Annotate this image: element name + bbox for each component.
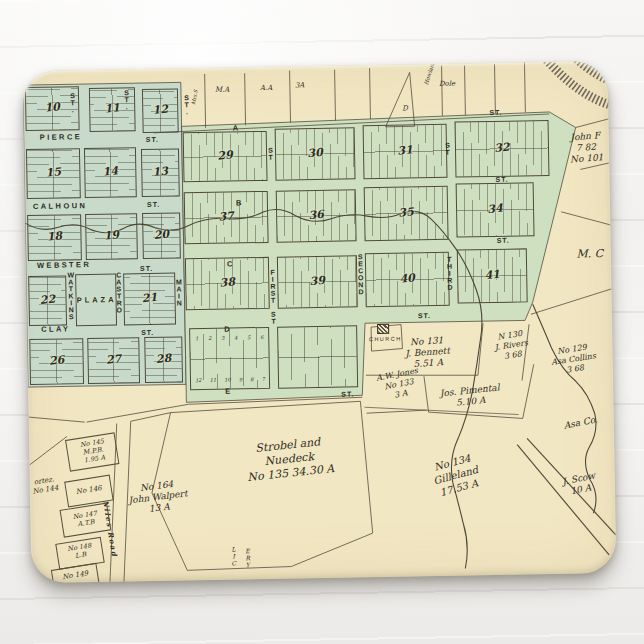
- map-block-lots: [277, 325, 358, 388]
- street-label-st: ST.: [140, 265, 153, 272]
- parcel-label-line: LIC: [229, 545, 237, 566]
- lot-number: 8: [250, 376, 253, 382]
- block-number: 28: [145, 350, 182, 367]
- street-label-first-st: FIRST ST: [268, 269, 278, 325]
- block-number: 38: [186, 272, 269, 294]
- mousepad: 10111215141318192022PLAZA212627282930313…: [23, 61, 617, 583]
- racetrack-arc-0: [541, 61, 616, 110]
- map-block-28: 28: [144, 336, 183, 383]
- block-number: 39: [278, 270, 357, 291]
- block-number: 12: [143, 101, 178, 117]
- lot-number: 1: [195, 335, 198, 341]
- map-block-36: 36: [276, 189, 357, 242]
- block-number: 37: [185, 206, 268, 228]
- boundary-line-30: [29, 436, 67, 465]
- map-block-15: 15: [26, 148, 81, 199]
- map-block-20: 20: [142, 212, 181, 259]
- map-block-19: 19: [85, 213, 138, 260]
- block-number: 14: [85, 163, 136, 181]
- map-block-37: 37: [184, 191, 269, 244]
- strip-label-a-a: A.A: [260, 84, 272, 92]
- boundary-line-11: [576, 119, 609, 128]
- street-label-clay: CLAY: [41, 324, 70, 334]
- street-label-st: ST.: [147, 201, 160, 208]
- parcel-label-cemetery-frag-2: ERY: [243, 547, 251, 568]
- map-block-21: 21: [123, 273, 176, 326]
- boundary-line-14: [530, 289, 611, 314]
- block-number: 18: [28, 227, 81, 245]
- lot-number: 2: [208, 335, 211, 341]
- street-label-a: A: [233, 123, 241, 132]
- lot-number: 4: [234, 334, 237, 340]
- map-block-41: 41: [457, 248, 528, 303]
- map-block-13: 13: [141, 148, 180, 197]
- street-label-webster: WEBSTER: [37, 260, 91, 270]
- boundary-line-25: [29, 416, 85, 423]
- strip-label-dole: Dole: [439, 80, 455, 88]
- wood-background: 10111215141318192022PLAZA212627282930313…: [0, 0, 644, 644]
- street-label-calhoun: CALHOUN: [33, 201, 87, 211]
- street-label-e: E: [225, 387, 233, 396]
- block-number: 13: [142, 163, 179, 180]
- map-block-18: 18: [27, 214, 82, 261]
- street-label-st: ST.: [68, 92, 77, 113]
- map-block-34: 34: [456, 182, 535, 237]
- boundary-line-3: [290, 70, 291, 122]
- lot-number: 11: [210, 377, 216, 383]
- parcel-label-church: CHURCH: [369, 336, 402, 344]
- parcel-label-line: CHURCH: [369, 336, 402, 344]
- lot-number: 3: [221, 335, 224, 341]
- strip-label-3a: 3A: [295, 81, 305, 89]
- parcel-label-m-c: M. C: [576, 247, 603, 261]
- street-label-st: ST.: [122, 89, 131, 110]
- boundary-line-32: [517, 443, 609, 557]
- boundary-line-22: [522, 364, 535, 418]
- boundary-line-16: [477, 323, 484, 375]
- map-block-12: 12: [142, 88, 179, 133]
- block-number: 26: [30, 351, 83, 369]
- map-block-39: 39: [277, 255, 358, 308]
- lot-number: 9: [239, 376, 242, 382]
- parcel-label-line: ERY: [243, 547, 251, 568]
- map-block-30: 30: [275, 127, 356, 180]
- map-block-35: 35: [364, 186, 449, 241]
- block-number: 27: [88, 350, 139, 368]
- boundary-line-13: [561, 211, 610, 226]
- block-number: 40: [366, 268, 449, 290]
- boundary-line-2: [245, 73, 246, 125]
- block-number: 21: [124, 289, 175, 307]
- block-number: 22: [29, 291, 66, 308]
- block-number: 29: [184, 145, 267, 167]
- street-label-main: MAIN: [174, 278, 183, 306]
- lot-number: 6: [260, 334, 263, 340]
- street-label-b: B: [236, 198, 244, 207]
- block-number: 35: [365, 202, 448, 224]
- street-label-castro: CASTRO: [114, 271, 124, 313]
- block-number: 41: [458, 265, 527, 285]
- boundary-line-20: [367, 410, 427, 413]
- strip-label-d: D: [402, 104, 408, 112]
- map-block-14: 14: [84, 147, 137, 198]
- parcel-label-line: M. C: [576, 247, 603, 261]
- block-number: 30: [276, 142, 355, 163]
- street-label-st: ST.: [341, 390, 354, 397]
- street-label-st: ST.: [182, 94, 191, 115]
- lot-number-row: 123456: [190, 334, 268, 341]
- block-number: 19: [86, 227, 137, 245]
- street-label-c: C: [227, 259, 235, 268]
- street-label-st: ST.: [146, 136, 159, 143]
- boundary-line-4: [335, 70, 336, 121]
- parcel-label-bennett: No 131J. Bennett5.51 A: [404, 335, 451, 371]
- map-block-lots: 123456121110987: [189, 327, 270, 390]
- map-block-22: 22: [28, 275, 67, 326]
- boundary-line-5: [370, 68, 371, 119]
- street-label-third: THIRD: [445, 256, 455, 291]
- parcel-label-line: No 101: [570, 152, 604, 165]
- lot-number: 7: [262, 376, 265, 382]
- church-icon: [377, 324, 389, 334]
- block-number: 32: [456, 136, 549, 159]
- lot-number: 10: [224, 377, 230, 383]
- boundary-line-27: [131, 413, 171, 422]
- map-paper: 10111215141318192022PLAZA212627282930313…: [23, 61, 617, 583]
- lot-number: 5: [247, 334, 250, 340]
- street-label-st: ST: [443, 142, 452, 156]
- block-number: 34: [457, 198, 534, 219]
- boundary-line-19: [424, 376, 429, 412]
- map-block-plaza: PLAZA: [75, 274, 117, 327]
- parcel-label-john-f: John F7 82No 101: [568, 130, 604, 165]
- parcel-label-cemetery-frag-1: LIC: [229, 545, 237, 566]
- map-block-31: 31: [363, 124, 448, 179]
- map-block-40: 40: [365, 252, 450, 307]
- map-block-26: 26: [29, 338, 84, 385]
- lot-number-row: 121110987: [191, 376, 269, 383]
- strip-label-m-a: M.A: [215, 86, 230, 94]
- street-label-watkins: WATKINS: [66, 271, 76, 320]
- street-label-st: ST: [266, 147, 275, 161]
- street-label-st: ST.: [495, 176, 508, 183]
- parcel-label-p145: No 145M.P.B.1.95 A: [79, 437, 107, 464]
- parcel-label-rivers: N 130J. Rivers3 68: [493, 328, 531, 363]
- boundary-line-1: [205, 74, 206, 128]
- map-block-29: 29: [183, 131, 268, 182]
- map-block-27: 27: [87, 337, 140, 384]
- street-label-d: D: [224, 325, 232, 334]
- block-number: 31: [364, 140, 447, 162]
- block-number: 15: [27, 163, 80, 181]
- block-number: PLAZA: [77, 295, 116, 305]
- street-label-pierce: PIERCE: [40, 132, 82, 142]
- boundary-line-21: [429, 410, 523, 420]
- street-label-st: ST.: [141, 329, 154, 336]
- street-label-st: ST.: [489, 109, 502, 116]
- map-block-32: 32: [455, 120, 550, 178]
- block-number: 36: [277, 204, 356, 225]
- lot-number: 12: [195, 377, 201, 383]
- street-label-second: SECOND: [356, 253, 366, 295]
- street-label-st: ST.: [497, 237, 510, 244]
- boundary-line-9: [525, 62, 526, 112]
- boundary-line-7: [465, 65, 466, 115]
- boundary-line-8: [495, 64, 496, 114]
- boundary-line-6: [442, 66, 443, 116]
- street-label-st: ST.: [418, 312, 431, 319]
- block-number: 20: [143, 226, 180, 243]
